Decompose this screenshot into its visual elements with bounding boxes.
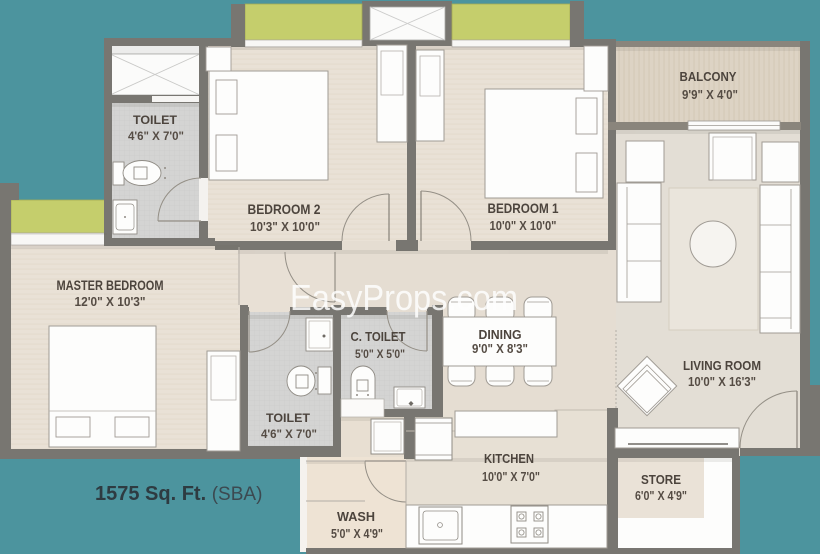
svg-text:BALCONY: BALCONY: [680, 69, 737, 84]
svg-text:BEDROOM 2: BEDROOM 2: [248, 201, 321, 217]
svg-text:4'6" X 7'0": 4'6" X 7'0": [261, 427, 317, 441]
svg-text:TOILET: TOILET: [133, 113, 178, 127]
svg-text:12'0" X 10'3": 12'0" X 10'3": [75, 294, 146, 309]
svg-text:1575 Sq. Ft. (SBA): 1575 Sq. Ft. (SBA): [95, 483, 262, 505]
svg-text:STORE: STORE: [641, 473, 681, 487]
svg-text:MASTER BEDROOM: MASTER BEDROOM: [57, 277, 164, 293]
svg-text:BEDROOM 1: BEDROOM 1: [488, 200, 559, 216]
svg-text:KITCHEN: KITCHEN: [484, 451, 534, 466]
svg-text:6'0" X 4'9": 6'0" X 4'9": [635, 489, 687, 503]
svg-text:5'0" X 4'9": 5'0" X 4'9": [331, 527, 383, 541]
svg-text:9'9" X 4'0": 9'9" X 4'0": [682, 87, 738, 102]
svg-text:TOILET: TOILET: [266, 411, 311, 425]
svg-text:4'6" X 7'0": 4'6" X 7'0": [128, 129, 184, 143]
svg-text:DINING: DINING: [479, 327, 522, 342]
svg-text:EasyProps.com: EasyProps.com: [290, 277, 518, 318]
svg-text:10'3" X 10'0": 10'3" X 10'0": [250, 219, 320, 234]
svg-text:C. TOILET: C. TOILET: [351, 330, 406, 344]
svg-text:LIVING ROOM: LIVING ROOM: [683, 358, 761, 373]
svg-text:WASH: WASH: [337, 509, 375, 524]
svg-text:9'0" X 8'3": 9'0" X 8'3": [472, 342, 528, 356]
svg-text:10'0" X 7'0": 10'0" X 7'0": [482, 470, 540, 484]
svg-text:10'0" X 10'0": 10'0" X 10'0": [490, 218, 557, 233]
svg-text:5'0" X 5'0": 5'0" X 5'0": [355, 347, 405, 361]
svg-text:10'0" X 16'3": 10'0" X 16'3": [688, 375, 756, 389]
